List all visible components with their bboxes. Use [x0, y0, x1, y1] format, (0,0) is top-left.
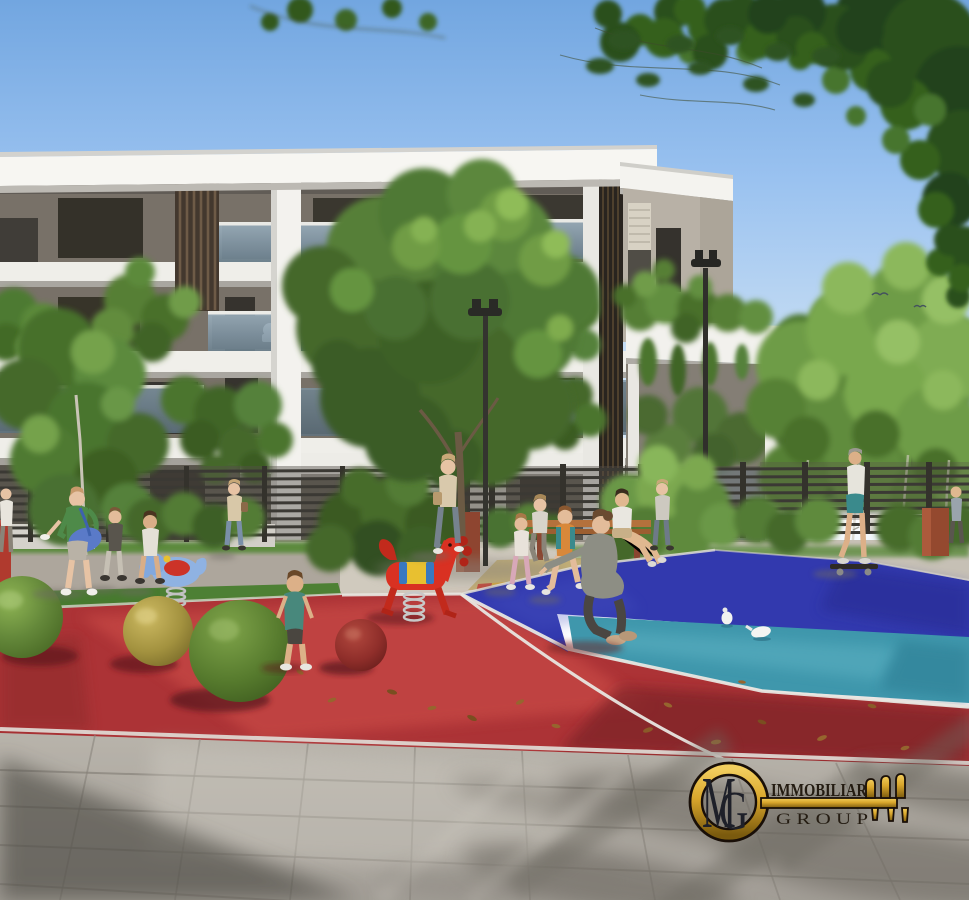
- svg-text:IMMOBILIAR: IMMOBILIAR: [771, 780, 868, 800]
- svg-text:G: G: [719, 781, 748, 841]
- svg-text:G R O U P: G R O U P: [776, 811, 868, 828]
